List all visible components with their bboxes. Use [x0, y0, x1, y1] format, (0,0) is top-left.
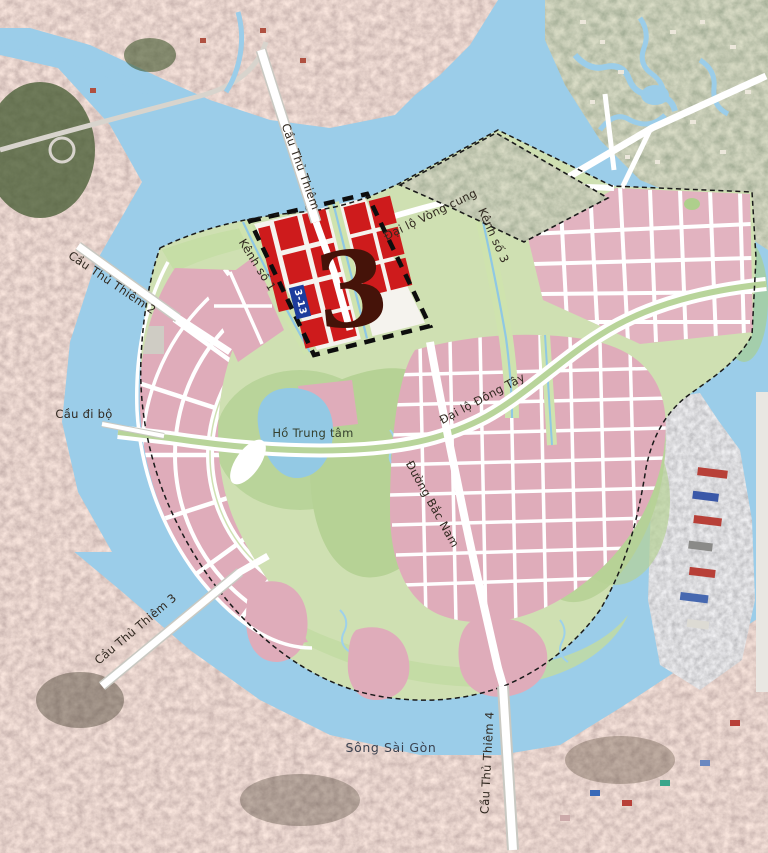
label-central-lake: Hồ Trung tâm — [272, 426, 353, 440]
park-northwest — [124, 38, 176, 72]
label-saigon-river: Sông Sài Gòn — [346, 740, 437, 755]
dark-blocks-south — [240, 774, 360, 826]
map-canvas[interactable]: 3-13 3 Cầu Thủ Thiêm Cầu Thủ Thiêm 2 Cầu… — [0, 0, 768, 853]
zone-number: 3 — [310, 225, 395, 355]
planning-map-svg: 3-13 3 Cầu Thủ Thiêm Cầu Thủ Thiêm 2 Cầu… — [0, 0, 768, 853]
dark-blocks-southeast — [565, 736, 675, 784]
suburb-pond — [641, 85, 669, 105]
label-pedestrian-bridge: Cầu đi bộ — [55, 407, 112, 421]
image-edge-strip — [756, 392, 768, 692]
